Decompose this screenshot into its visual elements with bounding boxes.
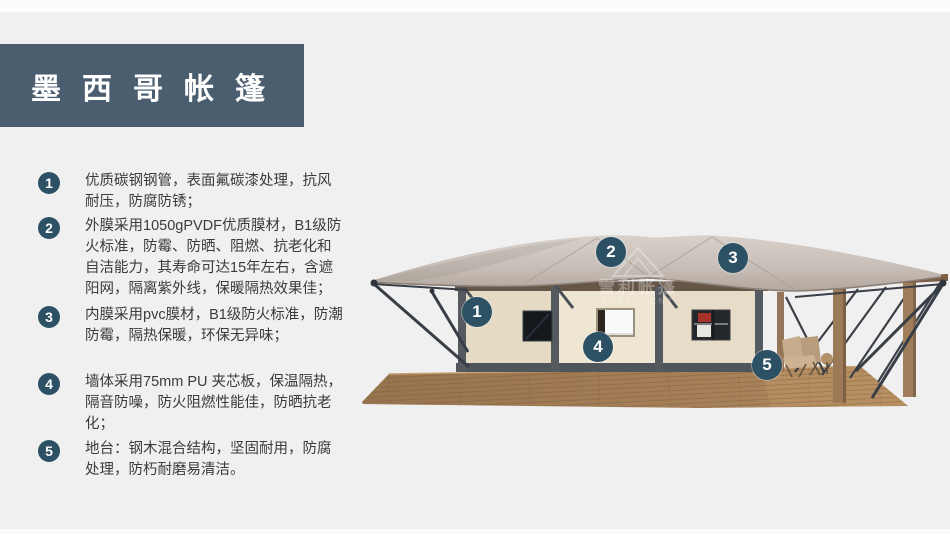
feature-item-2: 2 外膜采用1050gPVDF优质膜材，B1级防火标准，防霉、防晒、阻燃、抗老化… [38,216,343,300]
feature-number-badge: 2 [38,217,60,239]
camp-chair [782,336,833,377]
feature-text: 优质碳钢钢管，表面氟碳漆处理，抗风耐压，防腐防锈； [85,171,343,213]
feature-text: 外膜采用1050gPVDF优质膜材，B1级防火标准，防霉、防晒、阻燃、抗老化和自… [85,216,343,300]
feature-number-badge: 4 [38,373,60,395]
feature-list: 1 优质碳钢钢管，表面氟碳漆处理，抗风耐压，防腐防锈； 2 外膜采用1050gP… [38,0,358,534]
watermark-en: XUELI TENT [601,296,675,306]
feature-item-3: 3 内膜采用pvc膜材，B1级防火标准，防潮防霉，隔热保暖，环保无异味； [38,305,343,347]
feature-item-4: 4 墙体采用75mm PU 夹芯板，保温隔热，隔音防噪，防火阻燃性能佳，防晒抗老… [38,372,343,435]
tent-callout-3: 3 [718,243,748,273]
porch-posts [777,279,916,403]
fascia [455,281,768,291]
window-left [523,311,552,341]
watermark-cn: 雪利帐篷 [598,277,678,297]
left-guy-wires [371,280,470,368]
tent-callout-4: 4 [583,332,613,362]
right-guy-wires [795,280,947,399]
walls [455,281,768,372]
feature-number-badge: 3 [38,306,60,328]
window-right [692,310,730,340]
slide: 墨西哥帐篷 1 优质碳钢钢管，表面氟碳漆处理，抗风耐压，防腐防锈； 2 外膜采用… [0,0,950,534]
feature-item-1: 1 优质碳钢钢管，表面氟碳漆处理，抗风耐压，防腐防锈； [38,171,343,213]
wall-struts [462,285,677,308]
porch-beam [762,274,948,290]
roof [371,235,941,291]
tent-callout-1: 1 [462,297,492,327]
bottom-rail [456,363,766,372]
wall-posts [458,287,763,372]
tent-callout-5: 5 [752,350,782,380]
feature-text: 地台：钢木混合结构，坚固耐用，防腐处理，防朽耐磨易清洁。 [85,439,343,481]
feature-text: 内膜采用pvc膜材，B1级防火标准，防潮防霉，隔热保暖，环保无异味； [85,305,343,347]
roof-folds [524,237,794,289]
feature-text: 墙体采用75mm PU 夹芯板，保温隔热，隔音防噪，防火阻燃性能佳，防晒抗老化； [85,372,343,435]
tent-callout-2: 2 [596,237,626,267]
feature-number-badge: 1 [38,172,60,194]
porch-braces [786,283,940,382]
feature-number-badge: 5 [38,440,60,462]
feature-item-5: 5 地台：钢木混合结构，坚固耐用，防腐处理，防朽耐磨易清洁。 [38,439,343,481]
porch [762,274,948,403]
deck [362,366,908,408]
